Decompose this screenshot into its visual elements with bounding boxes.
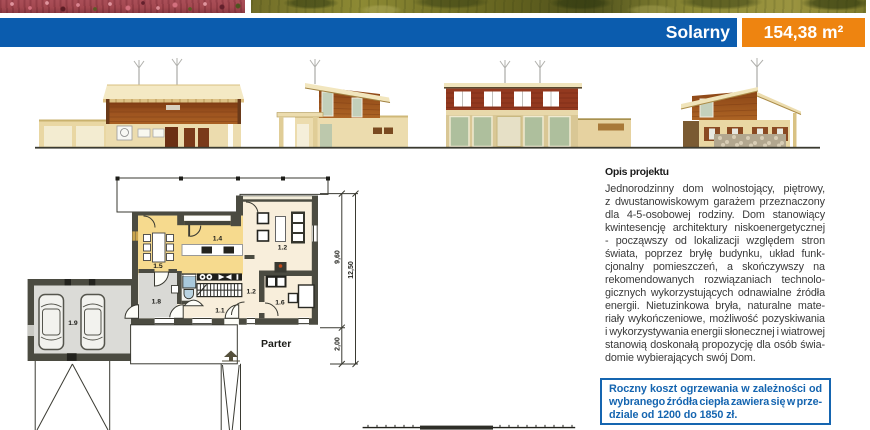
svg-text:12,50: 12,50 bbox=[348, 261, 355, 279]
svg-text:1.2: 1.2 bbox=[278, 244, 288, 251]
svg-text:Parter: Parter bbox=[261, 338, 291, 350]
svg-text:9,60: 9,60 bbox=[335, 250, 342, 264]
svg-text:2,00: 2,00 bbox=[335, 337, 342, 351]
svg-text:1.2: 1.2 bbox=[246, 289, 256, 296]
svg-text:1.1: 1.1 bbox=[215, 308, 225, 315]
svg-text:1.8: 1.8 bbox=[152, 299, 162, 306]
svg-text:1.9: 1.9 bbox=[68, 320, 78, 327]
svg-text:1.6: 1.6 bbox=[275, 299, 285, 306]
svg-text:1.5: 1.5 bbox=[153, 263, 163, 270]
svg-text:1.4: 1.4 bbox=[213, 236, 223, 243]
